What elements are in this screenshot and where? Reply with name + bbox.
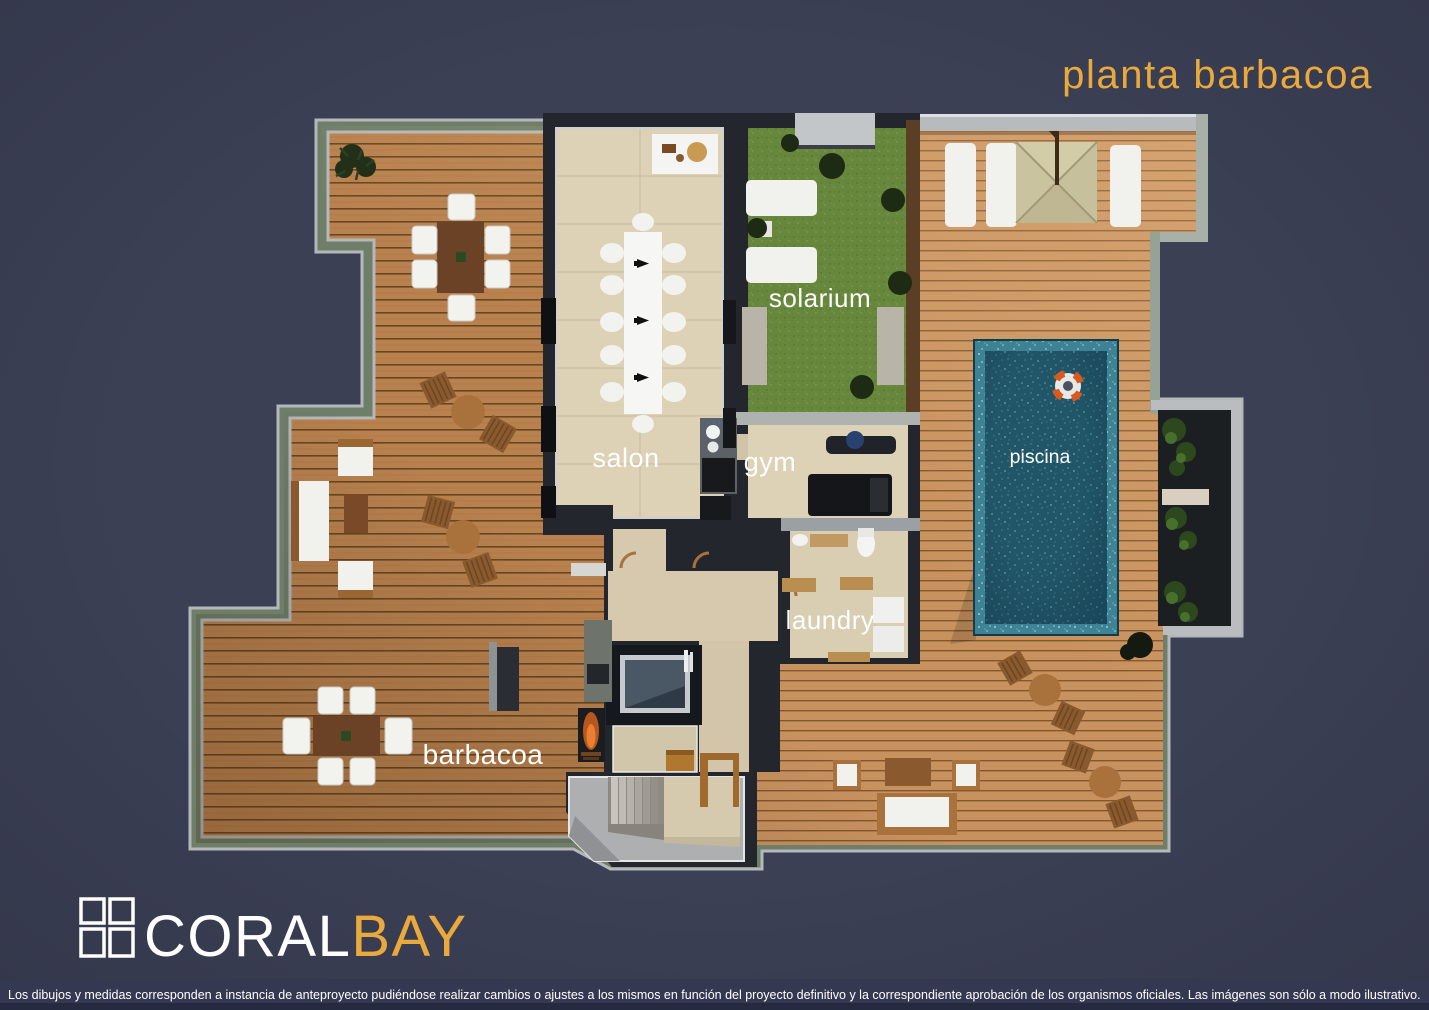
svg-text:CORALBAY: CORALBAY (144, 904, 468, 969)
svg-text:piscina: piscina (1010, 446, 1071, 468)
svg-text:salon: salon (592, 443, 659, 473)
svg-text:laundry: laundry (786, 605, 875, 635)
svg-text:planta barbacoa: planta barbacoa (1062, 53, 1373, 97)
svg-text:Los dibujos y medidas correspo: Los dibujos y medidas corresponden a ins… (8, 988, 1421, 1002)
svg-text:gym: gym (744, 447, 797, 477)
svg-text:solarium: solarium (769, 283, 871, 313)
svg-text:barbacoa: barbacoa (423, 739, 544, 770)
